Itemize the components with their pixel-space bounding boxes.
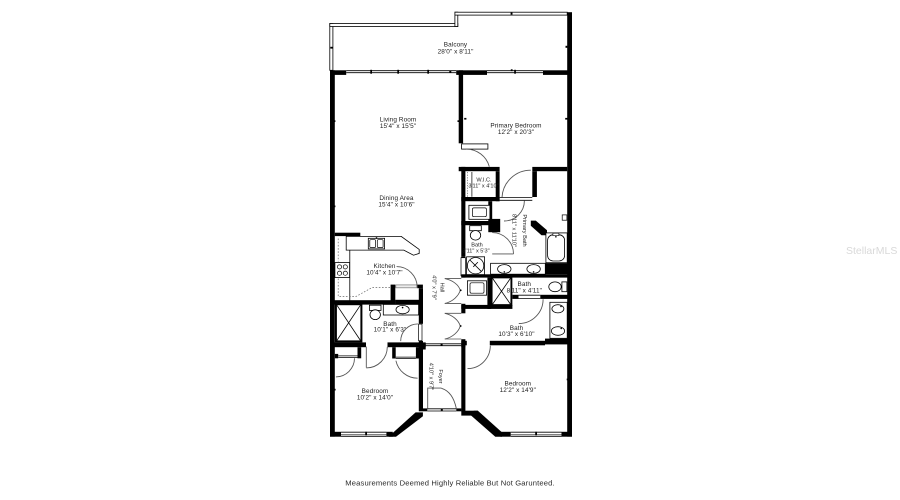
svg-text:10'4" x 10'7": 10'4" x 10'7" [366, 270, 402, 277]
svg-text:10'2" x 14'0": 10'2" x 14'0" [357, 395, 393, 402]
svg-text:StellarMLS: StellarMLS [846, 245, 897, 257]
svg-text:15'4" x 15'5": 15'4" x 15'5" [380, 123, 416, 130]
svg-text:3'11" x 5'3": 3'11" x 5'3" [462, 248, 489, 254]
svg-text:12'2" x 14'9": 12'2" x 14'9" [500, 387, 536, 394]
svg-text:8'11" x 4'11": 8'11" x 4'11" [507, 287, 542, 294]
svg-text:15'4" x 10'6": 15'4" x 10'6" [378, 202, 414, 209]
svg-text:28'0" x 8'11": 28'0" x 8'11" [438, 48, 474, 55]
svg-text:3'11" x 4'10": 3'11" x 4'10" [468, 184, 498, 190]
svg-text:10'3" x 6'10": 10'3" x 6'10" [498, 331, 534, 338]
svg-text:12'2" x 20'3": 12'2" x 20'3" [498, 129, 534, 136]
svg-text:10'1" x 6'3": 10'1" x 6'3" [374, 326, 407, 333]
svg-text:W.I.C.: W.I.C. [476, 178, 492, 184]
svg-text:Balcony: Balcony [444, 41, 468, 48]
svg-text:Measurements Deemed Highly Rel: Measurements Deemed Highly Reliable But … [345, 479, 554, 488]
